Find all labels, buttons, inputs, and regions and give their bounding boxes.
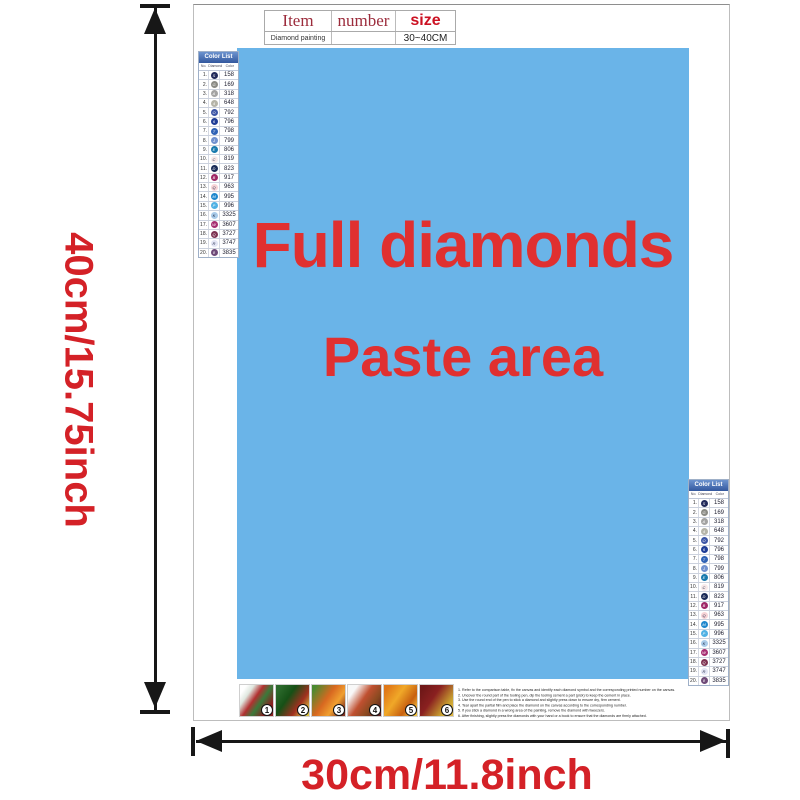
dmc-code: 792: [220, 110, 238, 116]
color-list-row: 3.A318: [689, 518, 728, 527]
dmc-code: 169: [220, 82, 238, 88]
row-number: 5.: [199, 108, 209, 116]
dmc-code: 819: [710, 584, 728, 590]
vertical-arrow-bottom-cap: [140, 710, 170, 714]
row-number: 20.: [199, 249, 209, 257]
diamond-symbol-icon: R: [209, 239, 220, 247]
color-list-row: 16.K3325: [199, 211, 238, 220]
step-thumbnails: 123456: [239, 684, 454, 718]
row-number: 7.: [199, 127, 209, 135]
instruction-line: 6. After finishing, slightly press the d…: [458, 714, 687, 719]
diamond-symbol-icon: E: [699, 574, 710, 582]
arrowhead-left-icon: [196, 730, 222, 752]
diamond-symbol-icon: 8: [699, 677, 710, 685]
step-number-badge: 6: [441, 704, 453, 716]
diamond-symbol-icon: O: [699, 536, 710, 544]
color-list-row: 2.G169: [689, 508, 728, 517]
step-thumbnail-1: 1: [239, 684, 274, 717]
width-dimension-label: 30cm/11.8inch: [301, 751, 593, 800]
paste-area-subtitle: Paste area: [323, 324, 603, 389]
dmc-code: 917: [220, 175, 238, 181]
dmc-code: 798: [220, 128, 238, 134]
row-number: 10.: [199, 155, 209, 163]
row-number: 3.: [199, 90, 209, 98]
dmc-code: 3835: [220, 250, 238, 256]
color-list-row: 9.E806: [689, 574, 728, 583]
row-number: 14.: [689, 620, 699, 628]
diamond-symbol-icon: G: [209, 80, 220, 88]
dmc-code: 3325: [220, 212, 238, 218]
color-list-rows: 1.S1582.G1693.A3184.46485.O7926.67967.T7…: [689, 499, 728, 685]
color-list-row: 16.K3325: [689, 639, 728, 648]
diamond-symbol-icon: W: [209, 221, 220, 229]
color-list-row: 9.E806: [199, 146, 238, 155]
color-list-row: 19.R3747: [199, 239, 238, 248]
diamond-symbol-icon: S: [699, 499, 710, 507]
diamond-symbol-icon: M: [699, 620, 710, 628]
dmc-code: 963: [220, 184, 238, 190]
instruction-line: 1. Refer to the comparison table, fix th…: [458, 688, 687, 693]
dmc-code: 806: [220, 147, 238, 153]
diamond-symbol-icon: S: [209, 71, 220, 79]
diamond-symbol-icon: 6: [209, 118, 220, 126]
dmc-code: 158: [710, 500, 728, 506]
row-number: 6.: [689, 546, 699, 554]
color-list-row: 15.P996: [199, 202, 238, 211]
diamond-symbol-icon: J: [209, 136, 220, 144]
color-list-row: 6.6796: [199, 118, 238, 127]
color-list-rows: 1.S1582.G1693.A3184.46485.O7926.67967.T7…: [199, 71, 238, 257]
color-list-columns: No. Diamond Color: [689, 491, 728, 499]
row-number: 18.: [199, 230, 209, 238]
color-list-row: 14.M995: [199, 192, 238, 201]
color-list-left: Color List No. Diamond Color 1.S1582.G16…: [198, 51, 239, 258]
canvas-sheet: Item number size Diamond painting 30~40C…: [193, 4, 730, 721]
dmc-code: 996: [220, 203, 238, 209]
color-list-row: 4.4648: [689, 527, 728, 536]
dmc-code: 158: [220, 72, 238, 78]
color-list-right: Color List No. Diamond Color 1.S1582.G16…: [688, 479, 729, 686]
color-list-row: 11.D823: [199, 164, 238, 173]
color-list-columns: No. Diamond Color: [199, 63, 238, 71]
paste-area-title: Full diamonds: [253, 208, 674, 282]
diamond-symbol-icon: Q: [699, 658, 710, 666]
size-header: size: [396, 11, 455, 31]
dmc-code: 799: [220, 138, 238, 144]
step-number-badge: 2: [297, 704, 309, 716]
dmc-code: 799: [710, 566, 728, 572]
dmc-code: 823: [710, 594, 728, 600]
diamond-symbol-icon: 4: [699, 527, 710, 535]
height-dimension-label: 40cm/15.75inch: [56, 232, 101, 528]
row-number: 6.: [199, 118, 209, 126]
horizontal-arrow-line: [196, 740, 727, 743]
row-number: 13.: [689, 611, 699, 619]
dmc-code: 169: [710, 510, 728, 516]
diamond-symbol-icon: C: [209, 155, 220, 163]
dmc-code: 963: [710, 612, 728, 618]
row-number: 11.: [689, 592, 699, 600]
color-list-row: 1.S158: [199, 71, 238, 80]
row-number: 15.: [199, 202, 209, 210]
diamond-symbol-icon: T: [699, 555, 710, 563]
color-list-row: 11.D823: [689, 592, 728, 601]
row-number: 18.: [689, 658, 699, 666]
color-list-row: 7.T798: [689, 555, 728, 564]
col-diamond: Diamond: [208, 63, 221, 71]
row-number: 20.: [689, 677, 699, 685]
row-number: 16.: [689, 639, 699, 647]
row-number: 12.: [199, 174, 209, 182]
dmc-code: 3607: [220, 222, 238, 228]
arrowhead-up-icon: [144, 8, 166, 34]
dmc-code: 648: [710, 528, 728, 534]
step-thumbnail-3: 3: [311, 684, 346, 717]
diamond-symbol-icon: G: [699, 508, 710, 516]
diamond-symbol-icon: P: [699, 630, 710, 638]
col-color: Color: [221, 63, 238, 71]
step-thumbnail-5: 5: [383, 684, 418, 717]
diamond-symbol-icon: M: [209, 192, 220, 200]
horizontal-arrow-left-cap: [191, 727, 195, 756]
color-list-row: 7.T798: [199, 127, 238, 136]
color-list-title: Color List: [689, 480, 728, 491]
color-list-title: Color List: [199, 52, 238, 63]
step-number-badge: 3: [333, 704, 345, 716]
row-number: 9.: [199, 146, 209, 154]
row-number: 2.: [689, 508, 699, 516]
row-number: 7.: [689, 555, 699, 563]
dmc-code: 648: [220, 100, 238, 106]
color-list-row: 18.Q3727: [199, 230, 238, 239]
color-list-row: 6.6796: [689, 546, 728, 555]
row-number: 4.: [199, 99, 209, 107]
diamond-symbol-icon: B: [699, 602, 710, 610]
row-number: 14.: [199, 192, 209, 200]
dmc-code: 792: [710, 538, 728, 544]
diamond-symbol-icon: D: [209, 164, 220, 172]
diamond-symbol-icon: R: [699, 667, 710, 675]
vertical-arrow-line: [154, 8, 157, 712]
col-color: Color: [711, 491, 728, 499]
dmc-code: 3727: [220, 231, 238, 237]
diamond-symbol-icon: C: [699, 583, 710, 591]
color-list-row: 20.83835: [689, 677, 728, 685]
diamond-symbol-icon: A: [699, 518, 710, 526]
row-number: 10.: [689, 583, 699, 591]
row-number: 8.: [689, 564, 699, 572]
dmc-code: 798: [710, 556, 728, 562]
arrowhead-right-icon: [700, 730, 726, 752]
row-number: 4.: [689, 527, 699, 535]
color-list-row: 2.G169: [199, 80, 238, 89]
step-thumbnail-2: 2: [275, 684, 310, 717]
dmc-code: 3727: [710, 659, 728, 665]
diamond-symbol-icon: O: [209, 108, 220, 116]
color-list-row: 8.J799: [689, 564, 728, 573]
dmc-code: 3607: [710, 650, 728, 656]
row-number: 15.: [689, 630, 699, 638]
diamond-symbol-icon: K: [699, 639, 710, 647]
diamond-symbol-icon: Q: [699, 611, 710, 619]
diamond-symbol-icon: B: [209, 174, 220, 182]
color-list-row: 14.M995: [689, 620, 728, 629]
col-diamond: Diamond: [698, 491, 711, 499]
dmc-code: 796: [710, 547, 728, 553]
item-header: Item: [265, 11, 332, 31]
color-list-row: 1.S158: [689, 499, 728, 508]
dmc-code: 995: [220, 194, 238, 200]
arrowhead-down-icon: [144, 682, 166, 708]
dmc-code: 318: [220, 91, 238, 97]
color-list-row: 12.B917: [689, 602, 728, 611]
row-number: 17.: [689, 649, 699, 657]
size-value: 30~40CM: [396, 32, 455, 44]
color-list-row: 8.J799: [199, 136, 238, 145]
diamond-symbol-icon: J: [699, 564, 710, 572]
color-list-row: 5.O792: [689, 536, 728, 545]
number-value: [332, 32, 396, 44]
row-number: 3.: [689, 518, 699, 526]
step-number-badge: 4: [369, 704, 381, 716]
dmc-code: 806: [710, 575, 728, 581]
row-number: 5.: [689, 536, 699, 544]
color-list-row: 4.4648: [199, 99, 238, 108]
diamond-symbol-icon: Q: [209, 230, 220, 238]
diamond-symbol-icon: 8: [209, 249, 220, 257]
diamond-symbol-icon: A: [209, 90, 220, 98]
row-number: 8.: [199, 136, 209, 144]
color-list-row: 3.A318: [199, 90, 238, 99]
dmc-code: 318: [710, 519, 728, 525]
item-table-header-row: Item number size: [265, 11, 455, 32]
diamond-symbol-icon: P: [209, 202, 220, 210]
diamond-symbol-icon: D: [699, 592, 710, 600]
dmc-code: 3835: [710, 678, 728, 684]
row-number: 19.: [689, 667, 699, 675]
row-number: 16.: [199, 211, 209, 219]
step-thumbnail-6: 6: [419, 684, 454, 717]
step-thumbnail-4: 4: [347, 684, 382, 717]
row-number: 12.: [689, 602, 699, 610]
diamond-symbol-icon: E: [209, 146, 220, 154]
dmc-code: 796: [220, 119, 238, 125]
diamond-symbol-icon: 6: [699, 546, 710, 554]
color-list-row: 13.Q963: [689, 611, 728, 620]
dmc-code: 3747: [710, 668, 728, 674]
diamond-symbol-icon: T: [209, 127, 220, 135]
diamond-symbol-icon: Q: [209, 183, 220, 191]
dmc-code: 823: [220, 166, 238, 172]
diamond-symbol-icon: W: [699, 649, 710, 657]
col-no: No.: [199, 63, 208, 71]
step-number-badge: 1: [261, 704, 273, 716]
dmc-code: 995: [710, 622, 728, 628]
row-number: 2.: [199, 80, 209, 88]
horizontal-arrow-right-cap: [726, 729, 730, 758]
number-header: number: [332, 11, 396, 31]
row-number: 9.: [689, 574, 699, 582]
row-number: 1.: [689, 499, 699, 507]
color-list-row: 10.C819: [689, 583, 728, 592]
item-table-value-row: Diamond painting 30~40CM: [265, 32, 455, 44]
color-list-row: 17.W3607: [199, 221, 238, 230]
row-number: 13.: [199, 183, 209, 191]
item-table: Item number size Diamond painting 30~40C…: [264, 10, 456, 45]
color-list-row: 12.B917: [199, 174, 238, 183]
color-list-row: 10.C819: [199, 155, 238, 164]
dmc-code: 819: [220, 156, 238, 162]
color-list-row: 19.R3747: [689, 667, 728, 676]
row-number: 11.: [199, 164, 209, 172]
color-list-row: 5.O792: [199, 108, 238, 117]
paste-area: Full diamonds Paste area: [237, 48, 689, 679]
col-no: No.: [689, 491, 698, 499]
color-list-row: 13.Q963: [199, 183, 238, 192]
row-number: 17.: [199, 221, 209, 229]
color-list-row: 20.83835: [199, 249, 238, 257]
diamond-symbol-icon: 4: [209, 99, 220, 107]
step-number-badge: 5: [405, 704, 417, 716]
color-list-row: 15.P996: [689, 630, 728, 639]
instructions-block: 1. Refer to the comparison table, fix th…: [458, 688, 687, 720]
diamond-symbol-icon: K: [209, 211, 220, 219]
row-number: 1.: [199, 71, 209, 79]
dmc-code: 3747: [220, 240, 238, 246]
color-list-row: 17.W3607: [689, 649, 728, 658]
dmc-code: 996: [710, 631, 728, 637]
color-list-row: 18.Q3727: [689, 658, 728, 667]
item-value: Diamond painting: [265, 32, 332, 44]
dmc-code: 3325: [710, 640, 728, 646]
dmc-code: 917: [710, 603, 728, 609]
row-number: 19.: [199, 239, 209, 247]
